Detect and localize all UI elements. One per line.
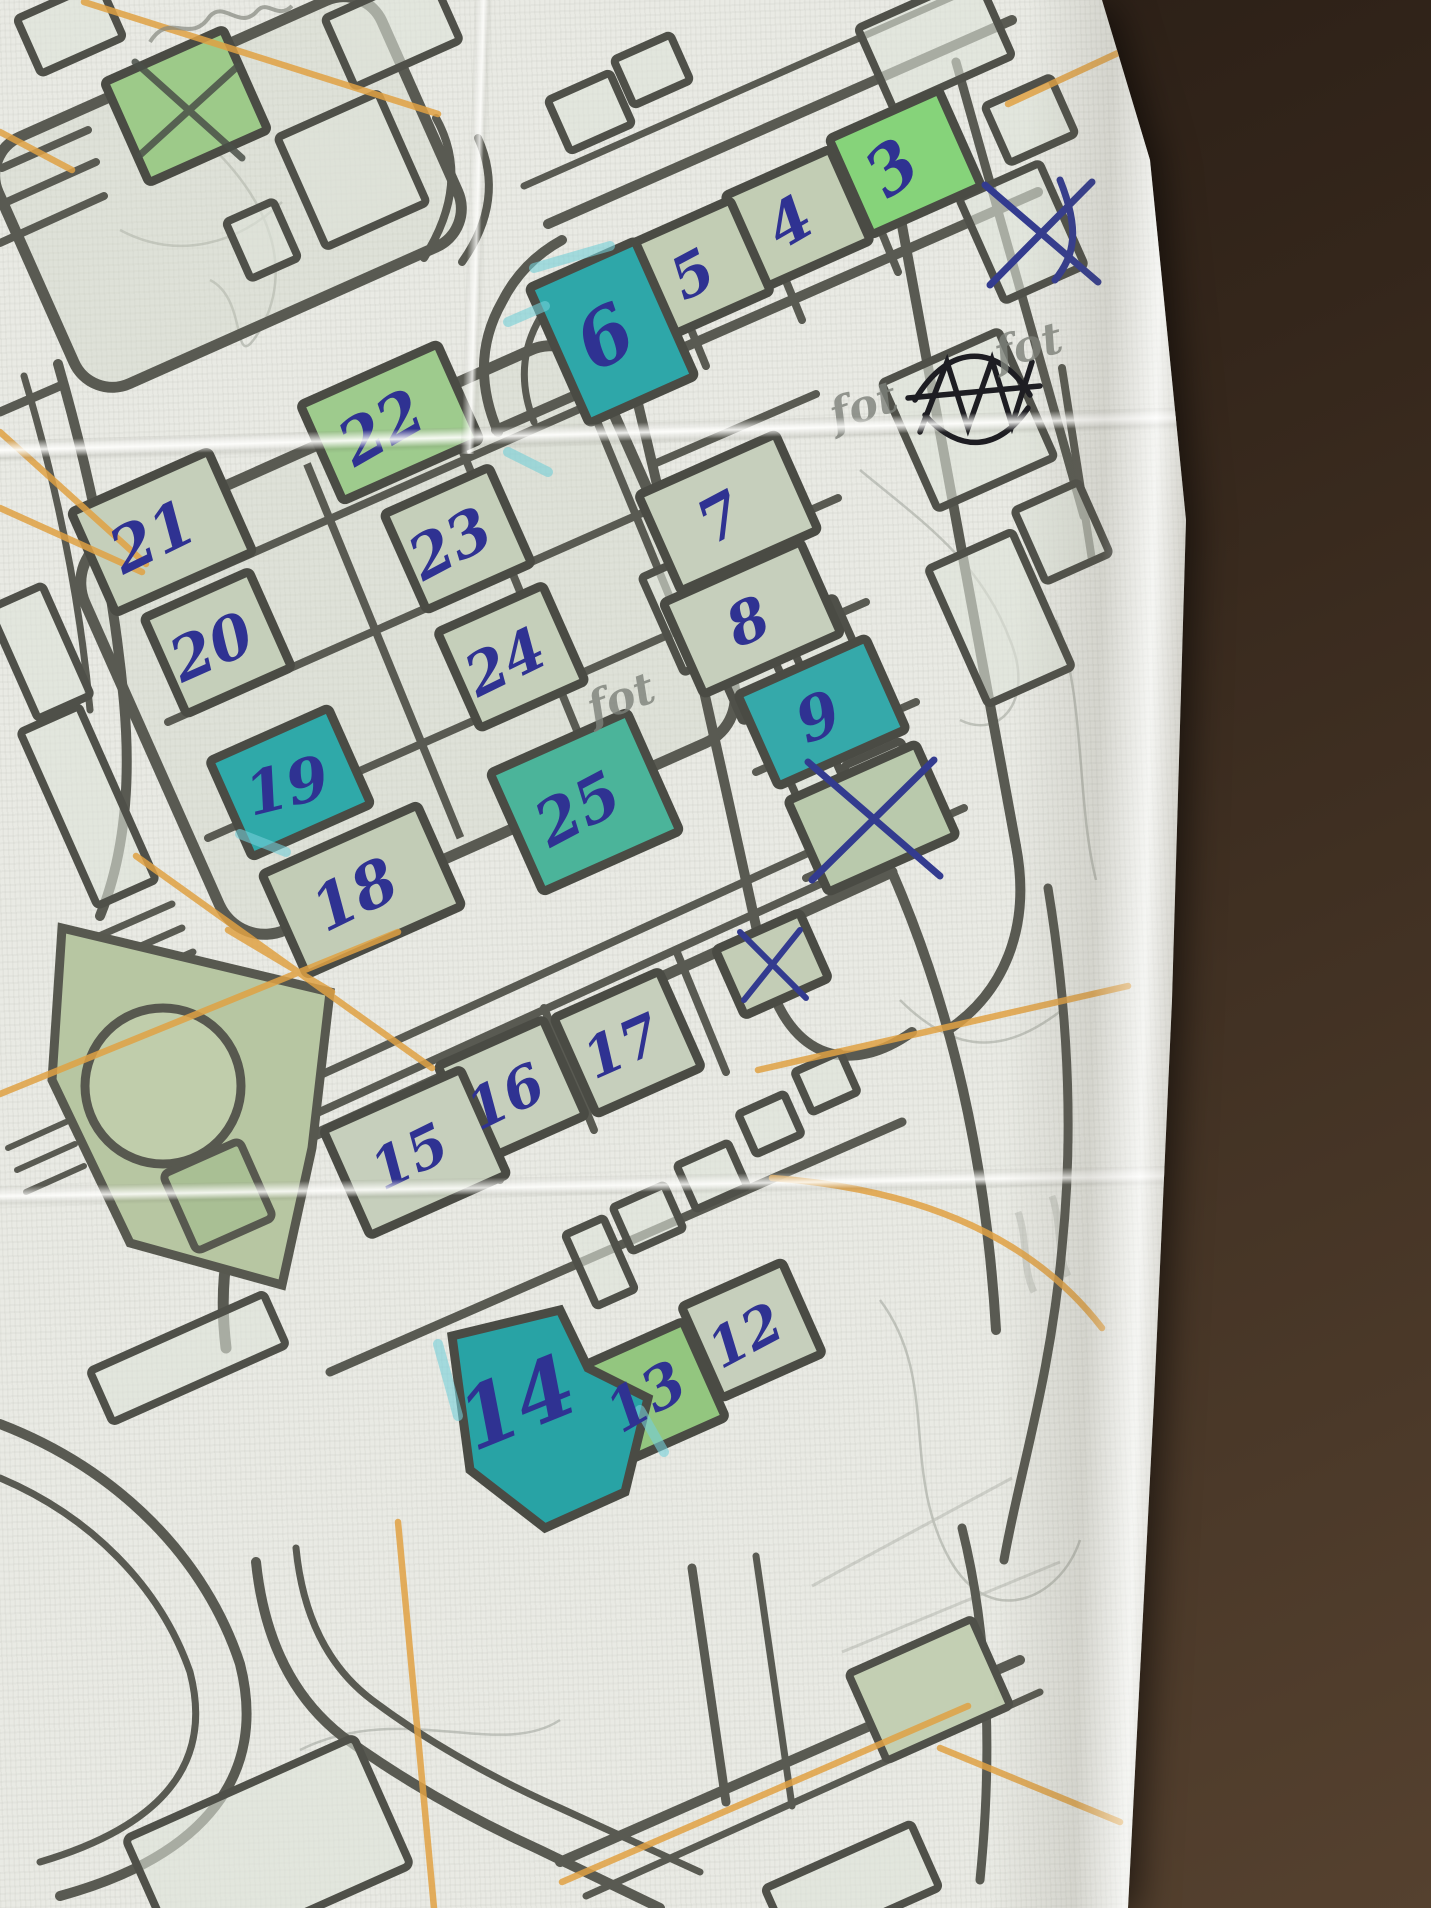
- map-paper-sheet: 3 4 5 6 7 8 9 21 22 23 24 20 19 18 25 17…: [0, 0, 1431, 1908]
- paper-shadow-wrap: 3 4 5 6 7 8 9 21 22 23 24 20 19 18 25 17…: [0, 0, 1431, 1908]
- photo-of-annotated-map: 3 4 5 6 7 8 9 21 22 23 24 20 19 18 25 17…: [0, 0, 1431, 1908]
- printed-map-svg: 3 4 5 6 7 8 9 21 22 23 24 20 19 18 25 17…: [0, 0, 1431, 1908]
- pencil-note-1: fot: [820, 371, 904, 442]
- park-circle: [85, 1008, 241, 1164]
- park-layer: [52, 928, 330, 1285]
